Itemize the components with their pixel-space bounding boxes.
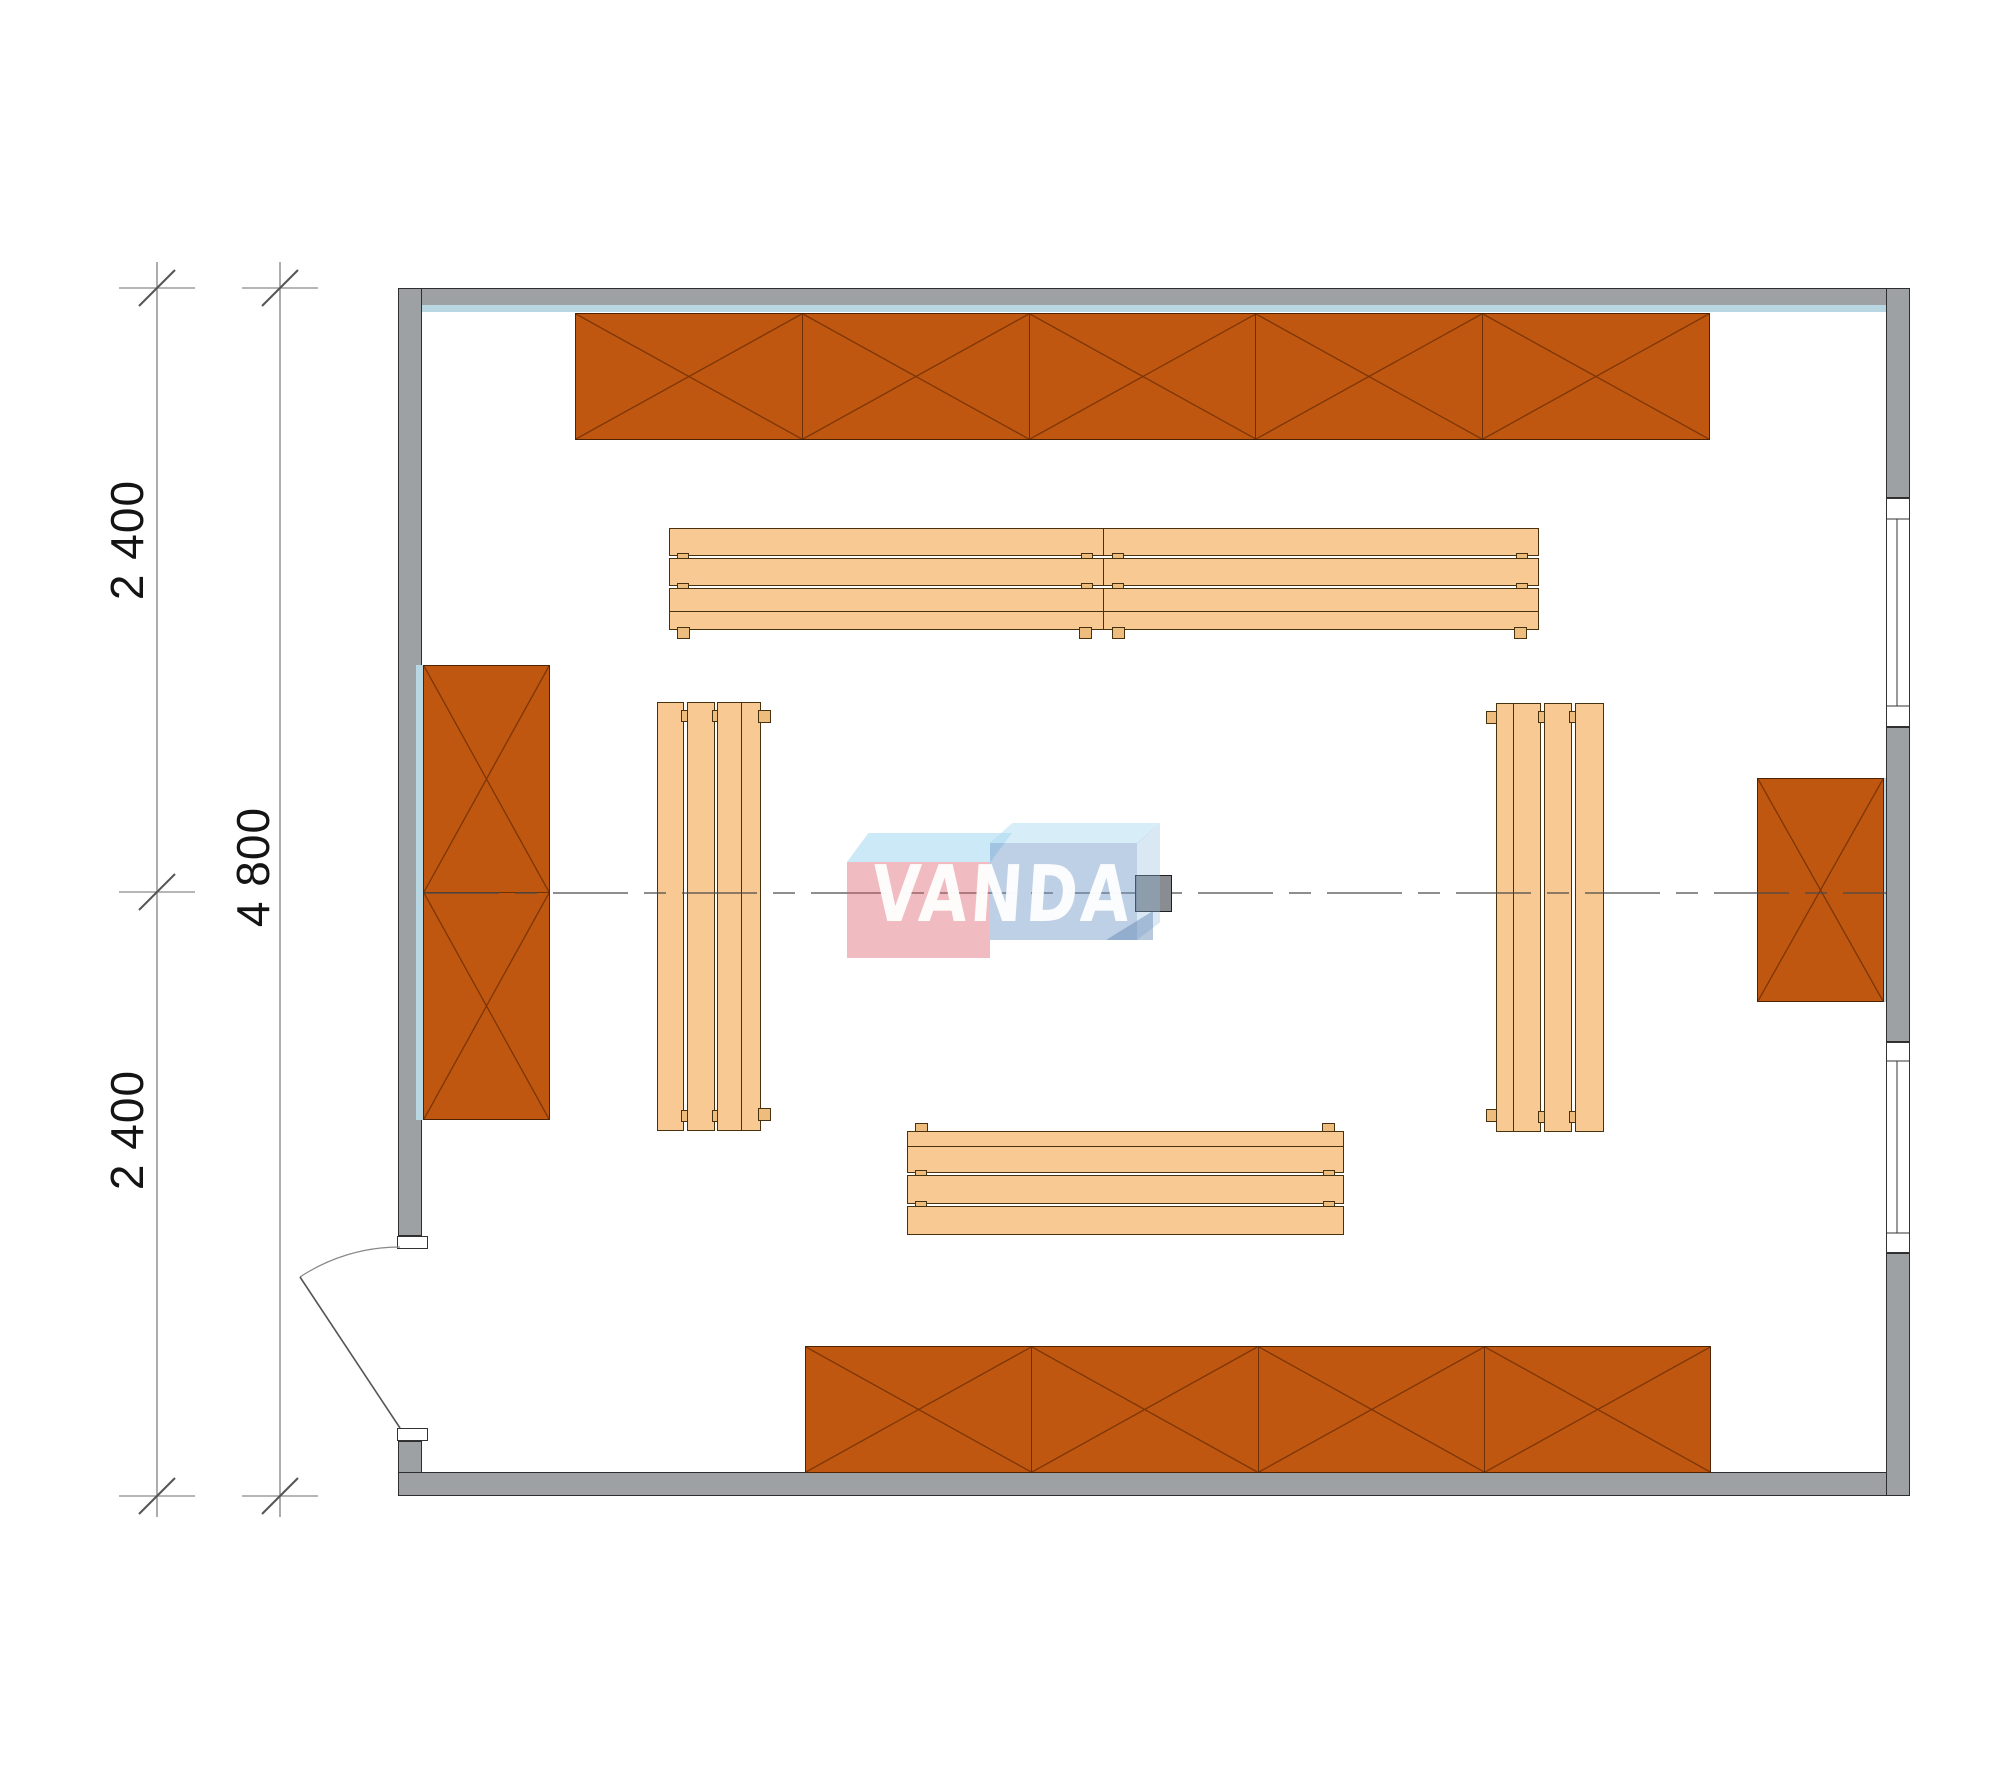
watermark-text: VANDA [869,856,1135,934]
door-leaf [300,1277,400,1428]
dim-label-bottom: 2 400 [103,1020,151,1240]
dim-tick [242,1478,318,1514]
x-mark-icon [576,314,802,439]
cabinet-bottom [805,1346,1711,1473]
bench-upper-left [669,528,1103,638]
window-right-lower [1886,1042,1910,1253]
x-mark-icon [1032,1347,1257,1472]
wall-lining-top [422,305,1886,312]
dim-tick [119,270,195,306]
bench-plank [687,702,715,1131]
bench-plank [907,1206,1344,1235]
bench-rail [741,702,761,1131]
x-mark-icon [803,314,1029,439]
wall-right-middle [1886,727,1910,1042]
bench-right [1486,703,1603,1130]
cabinet-section [1031,1347,1257,1472]
cabinet-section [424,666,549,892]
dim-tick [119,874,195,910]
cabinet-section [576,314,802,439]
bench-rail [1103,611,1539,630]
x-mark-icon [1259,1347,1484,1472]
bench-foot [758,1108,771,1121]
wall-lining-left [416,665,423,1120]
bench-plank [1575,703,1604,1132]
x-mark-icon [1758,779,1883,1001]
cabinet-section [1255,314,1482,439]
door-jamb-top [397,1236,428,1249]
cabinet-section [1029,314,1256,439]
cabinet-section [1258,1347,1484,1472]
dim-tick [119,1478,195,1514]
x-mark-icon [806,1347,1031,1472]
x-mark-icon [1485,1347,1710,1472]
bench-plank [669,558,1105,586]
bench-plank [907,1175,1344,1204]
cabinet-section [1484,1347,1710,1472]
cabinet-section [1758,779,1883,1001]
door-swing-arc [300,1247,400,1277]
bench-foot [677,627,690,639]
cabinet-section [424,892,549,1119]
window-right-upper [1886,498,1910,727]
wall-right-upper [1886,288,1910,498]
bench-plank [1103,528,1539,556]
cabinet-top [575,313,1710,440]
wall-left-door-stub [398,1441,422,1473]
x-mark-icon [424,666,549,892]
wall-bottom [398,1472,1910,1496]
door-jamb-bottom [397,1428,428,1441]
bench-plank [907,1146,1344,1173]
bench-left [657,702,771,1129]
x-mark-icon [424,893,549,1119]
bench-rail [669,611,1105,630]
bench-plank [717,702,744,1131]
bench-plank [1544,703,1572,1132]
x-mark-icon [1256,314,1482,439]
bench-plank [1103,558,1539,586]
cabinet-section [806,1347,1031,1472]
dim-label-top: 2 400 [103,430,151,650]
cabinet-right [1757,778,1884,1002]
cabinet-section [1482,314,1709,439]
watermark-top-face-right [990,823,1160,843]
bench-foot [1112,627,1125,639]
bench-plank [1513,703,1541,1132]
cabinet-section [802,314,1029,439]
bench-plank [669,528,1105,556]
cabinet-left [423,665,550,1120]
bench-upper-right [1103,528,1537,638]
dim-tick [242,270,318,306]
bench-foot [1079,627,1092,639]
x-mark-icon [1030,314,1256,439]
bench-plank [657,702,684,1131]
bench-foot [758,710,771,723]
bench-bottom [907,1123,1342,1233]
x-mark-icon [1483,314,1709,439]
floor-plan-canvas: VANDA 2 400 4 800 2 400 [0,0,2000,1786]
bench-foot [1514,627,1527,639]
wall-right-lower [1886,1253,1910,1496]
dim-label-overall: 4 800 [229,757,277,977]
